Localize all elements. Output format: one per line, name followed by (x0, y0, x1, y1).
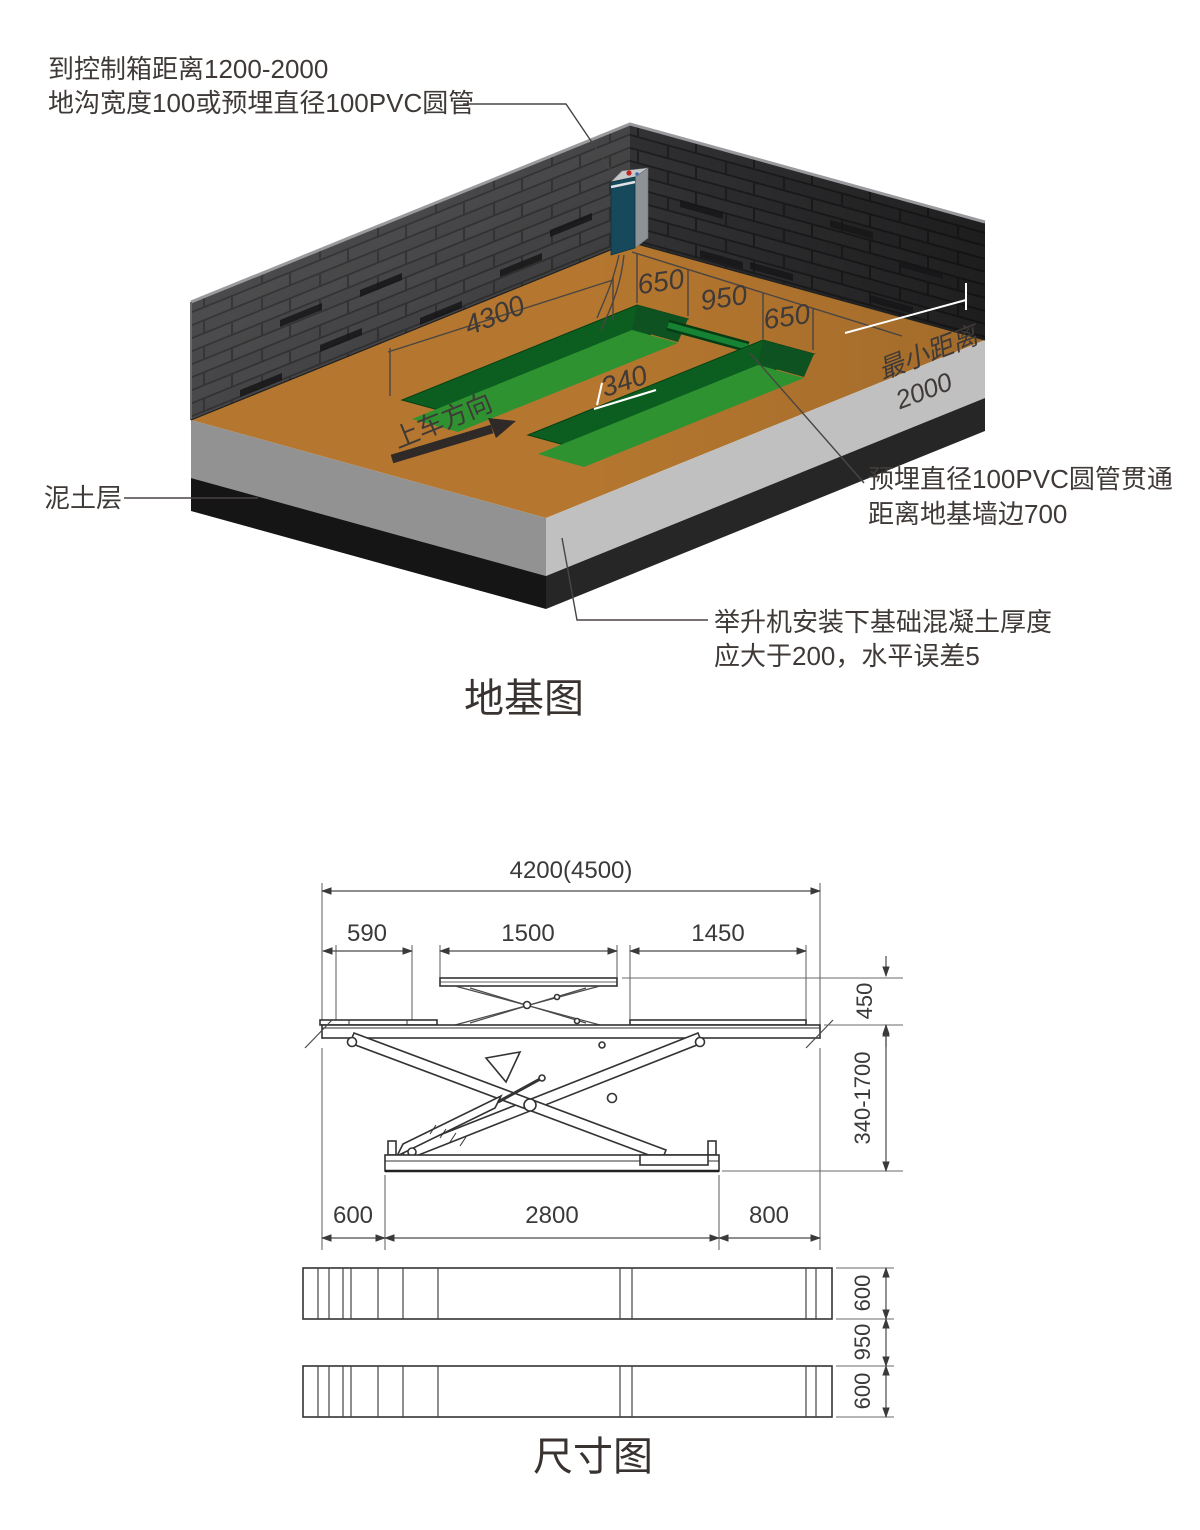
dim-runway-widths: 600 950 600 (836, 1268, 894, 1417)
dim-650-b: 650 (761, 298, 812, 335)
dim-runway-950: 950 (850, 1324, 875, 1361)
annotation-concrete-line1: 举升机安装下基础混凝土厚度 (714, 607, 1052, 637)
dim-overall: 4200(4500) (322, 857, 820, 1025)
annotation-control-box-line1: 到控制箱距离1200-2000 (48, 54, 328, 84)
lift-side-view (305, 978, 833, 1171)
foundation-title: 地基图 (464, 677, 584, 721)
dim-450: 450 (852, 983, 877, 1020)
dim-590: 590 (347, 920, 387, 947)
lift-top-view (303, 1268, 832, 1417)
annotation-concrete-line2: 应大于200，水平误差5 (714, 641, 980, 671)
page: 4300 650 950 650 最小距离 2000 340 上车方向 到控制箱… (0, 0, 1200, 1530)
dim-650-a: 650 (635, 263, 686, 300)
dim-2800: 2800 (525, 1202, 578, 1229)
dimension-diagram: 4200(4500) 590 1500 1450 (0, 770, 1200, 1530)
dim-runway-600-a: 600 (850, 1275, 875, 1312)
dim-runway-600-b: 600 (850, 1373, 875, 1410)
dim-600-front: 600 (333, 1202, 373, 1229)
runway (322, 1025, 820, 1038)
dim-950: 950 (698, 279, 749, 316)
dim-heights: 450 340-1700 (622, 956, 903, 1171)
foundation-diagram: 4300 650 950 650 最小距离 2000 340 上车方向 到控制箱… (0, 0, 1200, 770)
top-scissor (455, 986, 600, 1025)
annotation-pvc-line1: 预埋直径100PVC圆管贯通 (868, 464, 1173, 494)
runway-top-view-2 (303, 1366, 832, 1417)
dim-800: 800 (749, 1202, 789, 1229)
annotation-control-box-line2: 地沟宽度100或预埋直径100PVC圆管 (48, 88, 474, 118)
dim-340-1700: 340-1700 (850, 1052, 875, 1145)
dimension-title: 尺寸图 (533, 1435, 653, 1479)
dim-4200: 4200(4500) (510, 857, 633, 884)
dim-1450: 1450 (691, 920, 744, 947)
soil-layer-label: 泥土层 (44, 483, 122, 513)
main-scissor (348, 1033, 705, 1160)
dim-row-segments: 590 1500 1450 (323, 920, 806, 1020)
emergency-button (626, 170, 631, 175)
runway-top-view-1 (303, 1268, 832, 1319)
annotation-control-box: 到控制箱距离1200-2000 地沟宽度100或预埋直径100PVC圆管 (48, 54, 610, 169)
dim-1500: 1500 (501, 920, 554, 947)
annotation-pvc-line2: 距离地基墙边700 (868, 499, 1067, 529)
